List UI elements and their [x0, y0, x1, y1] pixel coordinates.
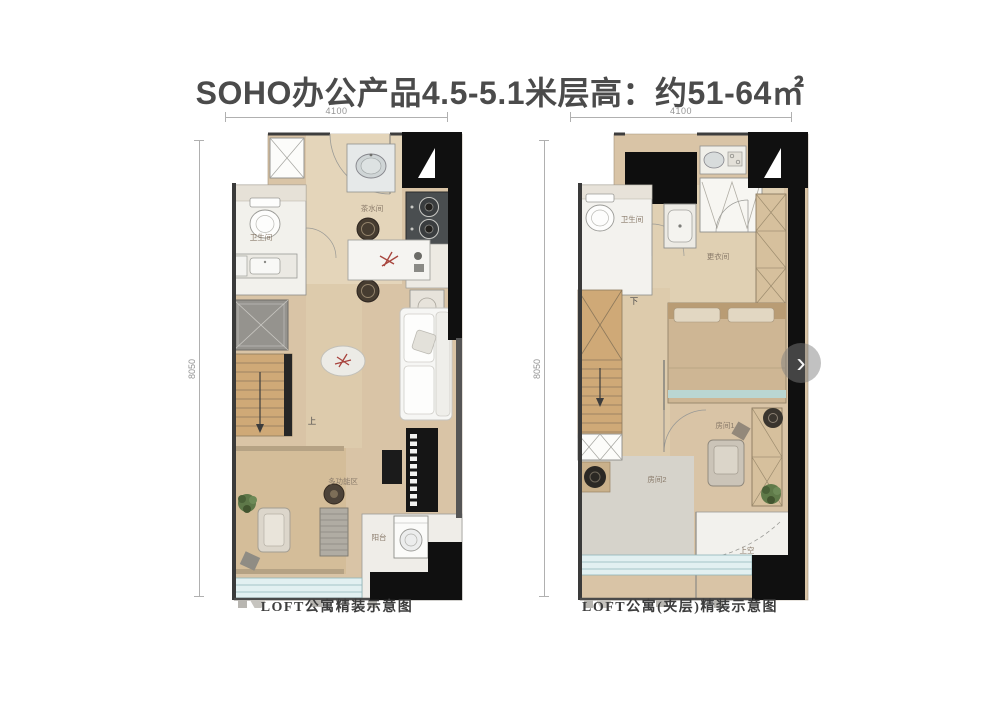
left-dim-side-value: 8050: [187, 358, 197, 378]
toilet-icon: [250, 198, 280, 238]
stairs-up-label: 上: [308, 416, 317, 426]
room2-label: 房间2: [647, 474, 666, 484]
toilet-icon: [586, 194, 614, 231]
island-table: [348, 240, 430, 280]
right-dimension-top: 4100: [570, 104, 792, 118]
right-floorplan: 上空: [568, 128, 818, 608]
kitchenette-icon: [700, 146, 746, 174]
bathroom-sink-icon: [235, 254, 297, 278]
left-dim-top-value: 4100: [225, 106, 448, 116]
chevron-right-icon: ›: [796, 349, 805, 377]
window-band: [234, 578, 362, 598]
rug-icon: [321, 346, 365, 376]
cabinet-icon: [234, 300, 288, 350]
dimension-tick: [194, 140, 204, 141]
washing-machine-icon: [394, 516, 428, 558]
void-above-label: 上空: [740, 545, 755, 555]
dimension-tick: [225, 112, 226, 122]
wardrobe-icon: [756, 194, 786, 304]
multi-function-label: 多功能区: [328, 476, 358, 486]
right-caption: LOFT公寓(夹层)精装示意图: [550, 596, 810, 616]
shaft-icon: [270, 138, 304, 178]
chair-icon: [708, 440, 744, 486]
left-floorplan: 卫生间 茶水间: [222, 128, 472, 608]
shower-icon: [664, 204, 696, 248]
radiator-icon: [578, 434, 622, 460]
stairs-icon: [234, 354, 292, 436]
dimension-tick: [539, 596, 549, 597]
piano-icon: [406, 428, 438, 512]
left-dimension-top: 4100: [225, 104, 448, 118]
right-dim-side-value: 8050: [532, 358, 542, 378]
dimension-tick: [791, 112, 792, 122]
right-dim-top-value: 4100: [570, 106, 792, 116]
balcony-label: 阳台: [372, 532, 387, 542]
page-title: SOHO办公产品4.5-5.1米层高：约51-64㎡: [0, 68, 1000, 114]
stool-icon: [357, 280, 379, 302]
stove-icon: [406, 192, 450, 244]
speaker-icon: [580, 462, 610, 492]
stool-icon: [357, 218, 379, 240]
bed-icon: [668, 303, 786, 403]
stairs-icon: [578, 290, 622, 438]
speaker-icon: [763, 408, 783, 428]
sofa-icon: [400, 308, 452, 420]
tea-room-label: 茶水间: [361, 203, 384, 213]
right-window-band: [580, 555, 752, 575]
dimension-tick: [539, 140, 549, 141]
tv-icon: [382, 450, 402, 484]
dressing-room-label: 更衣间: [707, 251, 730, 261]
bathroom-label: 卫生间: [621, 214, 644, 224]
left-caption: LOFT公寓精装示意图: [224, 596, 450, 616]
bathroom-label: 卫生间: [250, 232, 273, 242]
floorplan-page: SOHO办公产品4.5-5.1米层高：约51-64㎡ 4100 8050: [0, 0, 1000, 725]
room1-label: 房间1: [715, 420, 734, 430]
left-dimension-side: 8050: [186, 140, 200, 597]
bench-icon: [320, 508, 348, 556]
armchair-icon: [258, 508, 290, 552]
stairs-down-label: 下: [630, 296, 639, 306]
dimension-tick: [194, 596, 204, 597]
dimension-tick: [570, 112, 571, 122]
right-dimension-side: 8050: [531, 140, 545, 597]
plant-icon: [761, 484, 781, 504]
tea-sink-icon: [347, 144, 395, 192]
dimension-tick: [447, 112, 448, 122]
next-button[interactable]: ›: [781, 343, 821, 383]
